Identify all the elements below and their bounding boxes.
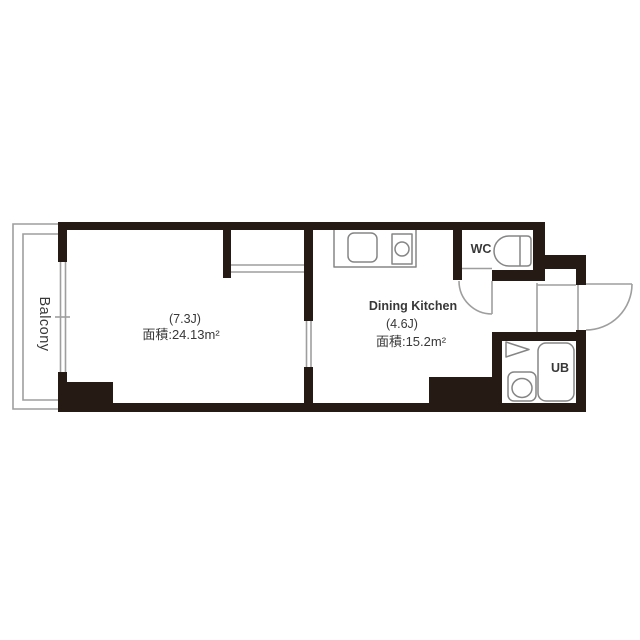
toilet-icon — [494, 236, 531, 266]
wall-segment — [58, 222, 545, 230]
wall-segment — [223, 230, 231, 278]
bath-label: UB — [551, 361, 569, 375]
triangle-marker-icon — [506, 342, 529, 357]
labels-group: Balcony (7.3J) 面積:24.13m² Dining Kitchen… — [36, 242, 569, 375]
floor-plan-drawing: Balcony (7.3J) 面積:24.13m² Dining Kitchen… — [0, 0, 640, 640]
floor-plan-page: Balcony (7.3J) 面積:24.13m² Dining Kitchen… — [0, 0, 640, 640]
wall-segment — [576, 269, 586, 285]
wall-segment — [533, 222, 545, 281]
stove-burner-icon — [395, 242, 409, 256]
wc-door-swing-icon — [459, 281, 492, 314]
dining-kitchen-area-label: 面積:15.2m² — [376, 334, 447, 349]
balcony-label: Balcony — [36, 296, 52, 351]
wall-segment — [58, 403, 586, 412]
wall-segment — [304, 367, 313, 412]
wall-segment — [453, 230, 462, 280]
wall-segment — [58, 222, 67, 262]
living-room-size-label: (7.3J) — [169, 312, 201, 326]
wall-segment — [576, 330, 586, 412]
entry-door-swing-icon — [586, 284, 632, 330]
dining-kitchen-name-label: Dining Kitchen — [369, 299, 457, 313]
wall-segment — [492, 332, 586, 341]
living-room-area-label: 面積:24.13m² — [142, 327, 220, 342]
wc-label: WC — [471, 242, 492, 256]
wall-segment — [429, 377, 495, 412]
dining-kitchen-size-label: (4.6J) — [386, 317, 418, 331]
wall-segment — [537, 255, 586, 269]
wall-segment — [304, 230, 313, 321]
kitchen-sink-icon — [348, 233, 377, 262]
washbasin-bowl-icon — [512, 379, 532, 398]
